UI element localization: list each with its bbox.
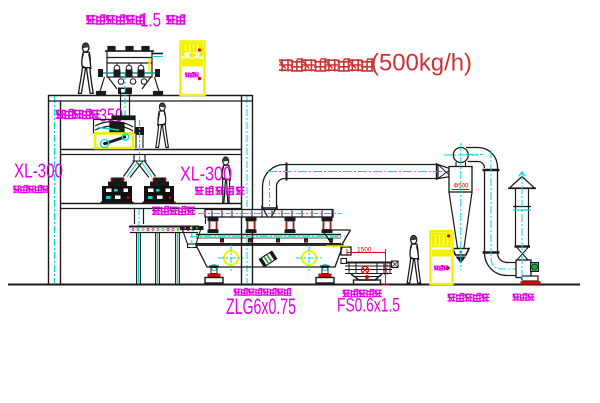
svg-text:1500: 1500	[357, 247, 372, 254]
svg-text:FS0.6x1.5: FS0.6x1.5	[337, 296, 400, 317]
svg-text:(500kg/h): (500kg/h)	[371, 50, 472, 77]
svg-text:XL-300: XL-300	[180, 164, 232, 186]
svg-text:1.5: 1.5	[140, 11, 161, 32]
svg-text:ZLG6x0.75: ZLG6x0.75	[226, 294, 296, 319]
svg-text:XL-300: XL-300	[14, 161, 63, 183]
